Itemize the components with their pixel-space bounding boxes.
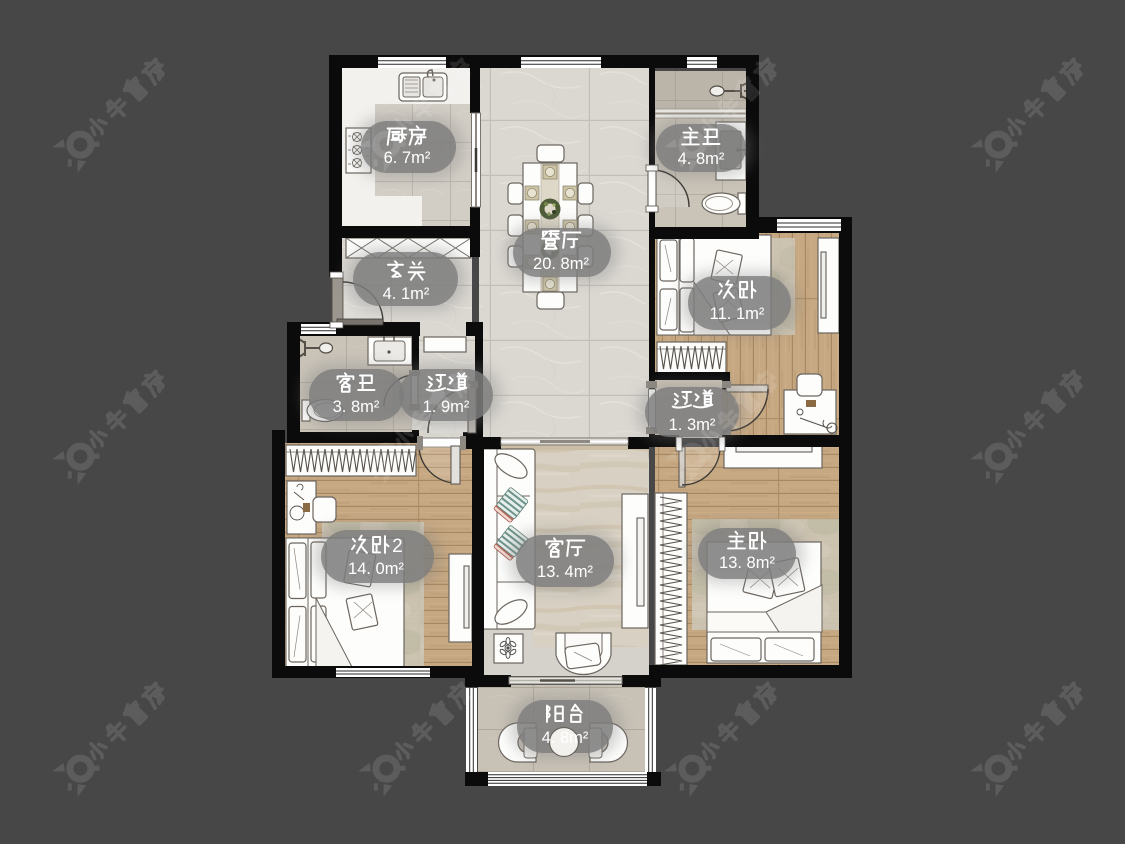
svg-text:20. 8m²: 20. 8m²: [533, 255, 589, 273]
svg-text:11. 1m²: 11. 1m²: [710, 305, 765, 323]
svg-text:1. 3m²: 1. 3m²: [669, 416, 716, 434]
svg-text:4. 1m²: 4. 1m²: [383, 285, 430, 303]
svg-text:13. 4m²: 13. 4m²: [537, 563, 593, 581]
svg-text:3. 8m²: 3. 8m²: [333, 398, 380, 416]
svg-text:2: 2: [392, 536, 403, 557]
svg-text:13. 8m²: 13. 8m²: [719, 554, 775, 572]
svg-text:14. 0m²: 14. 0m²: [348, 560, 404, 578]
svg-text:4. 8m²: 4. 8m²: [542, 729, 589, 747]
